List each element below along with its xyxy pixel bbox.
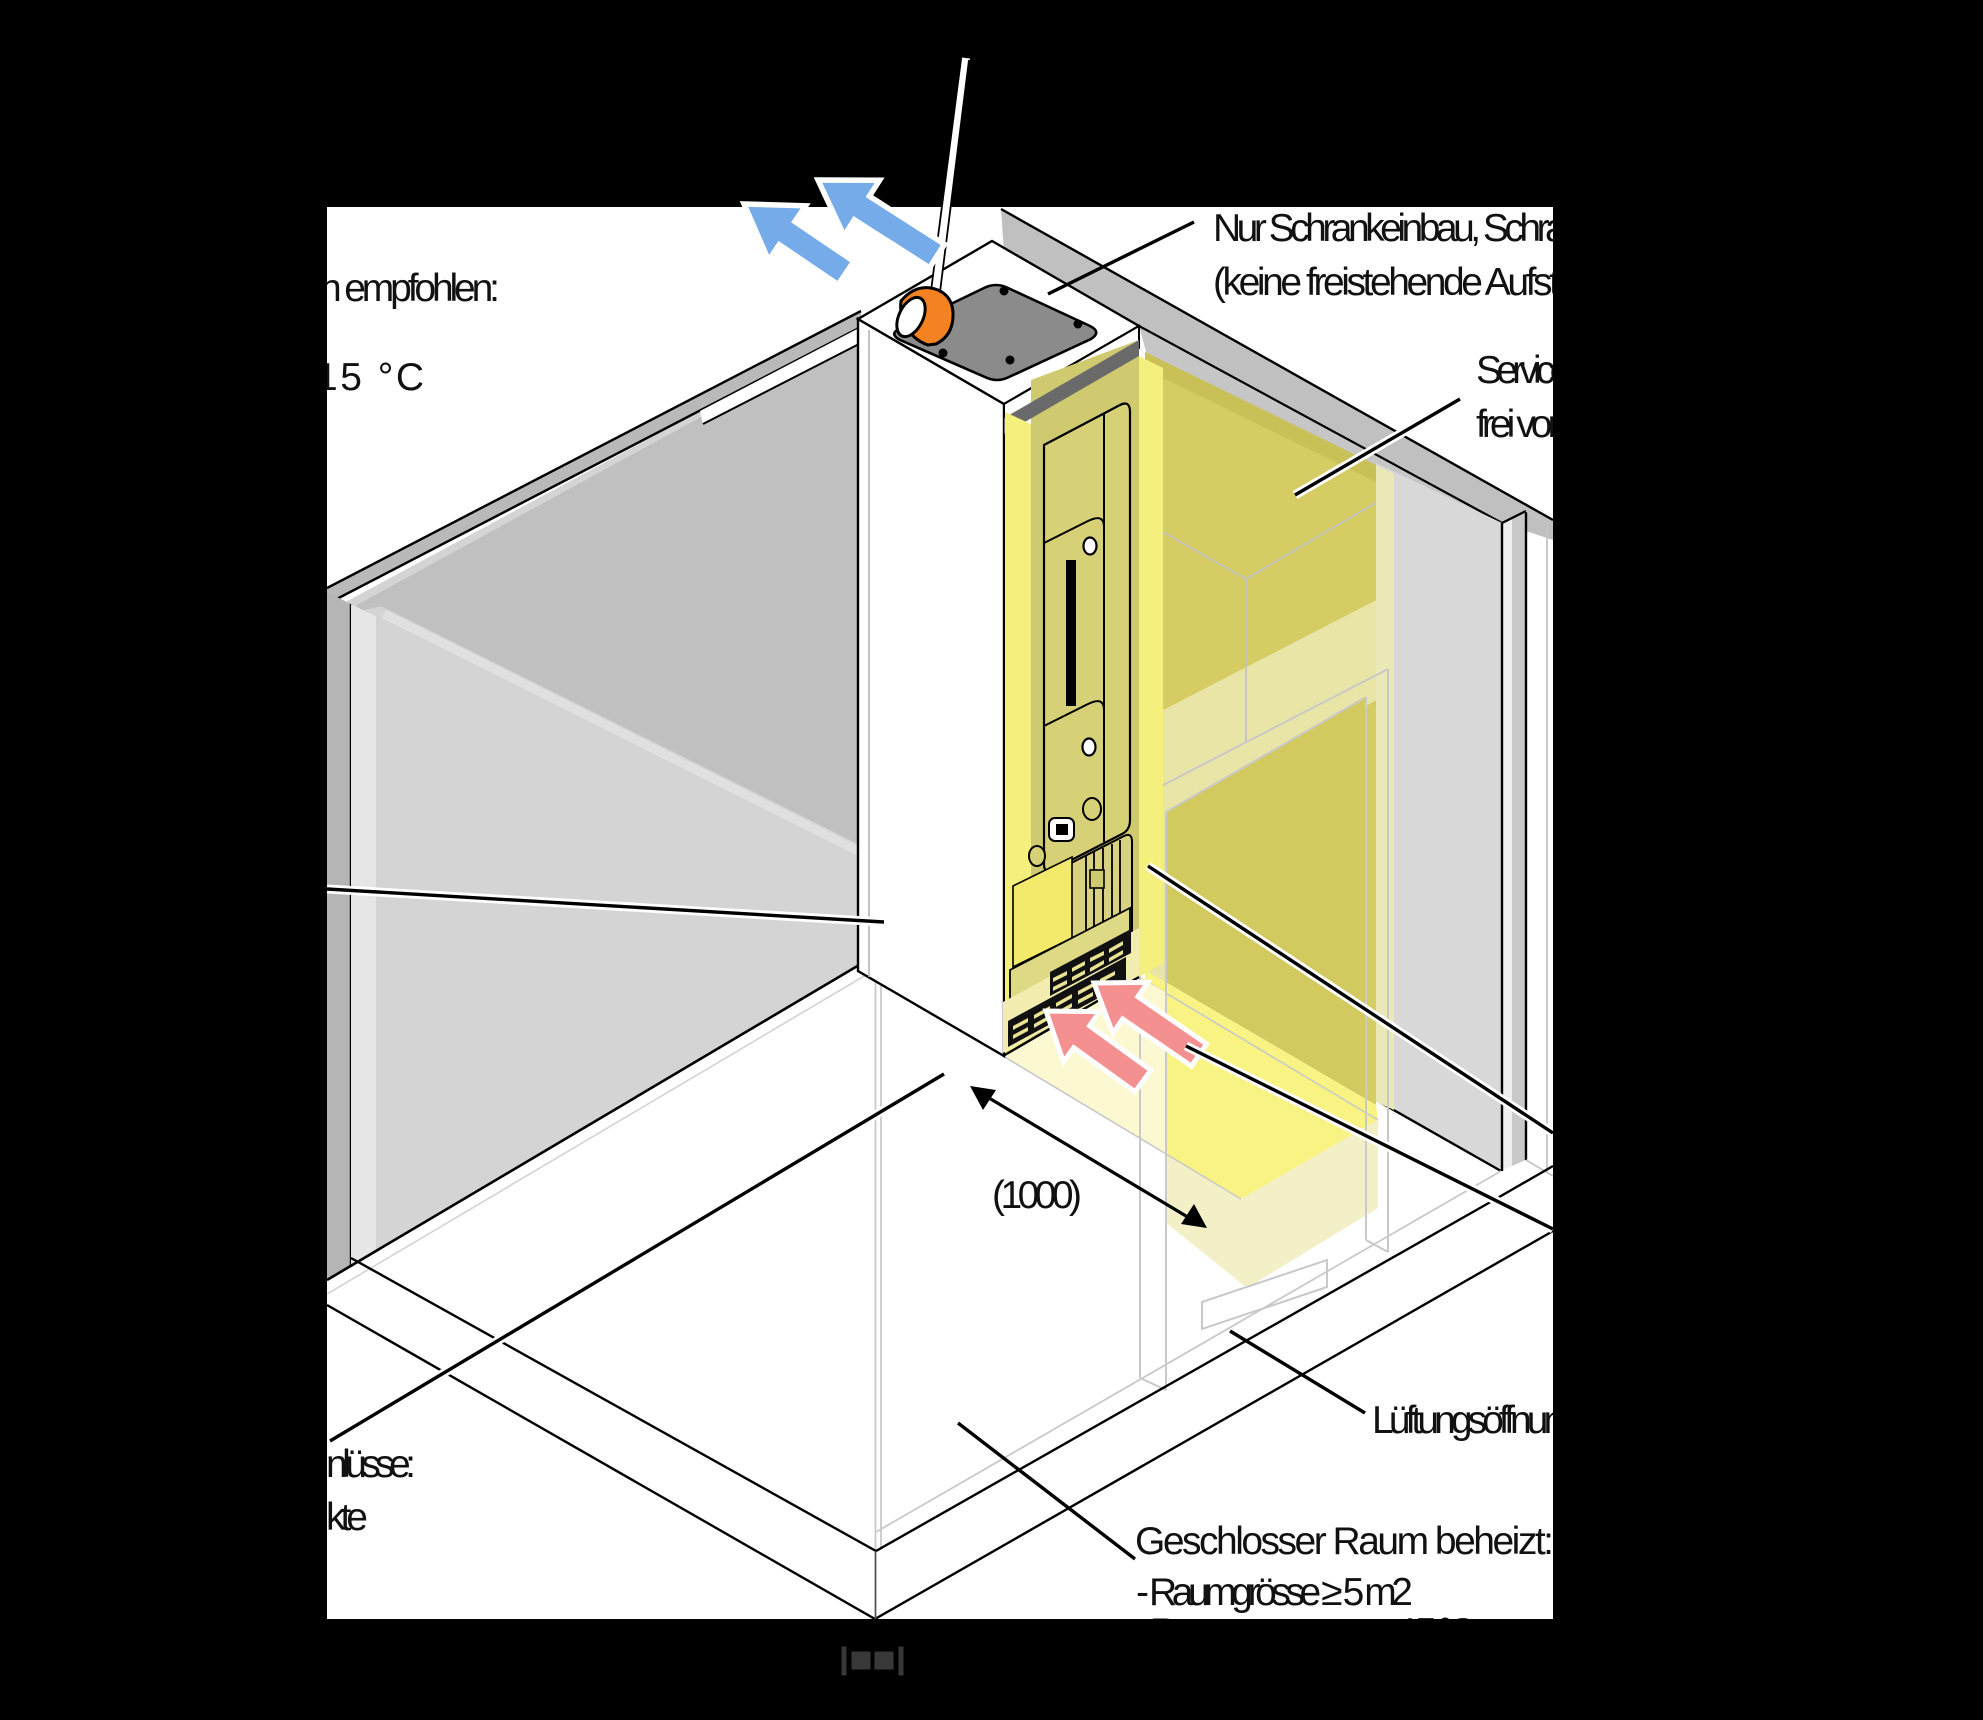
svg-text:Lüftungsöffnung: Lüftungsöffnung [1372,1399,1582,1442]
svg-text:15 °C: 15 °C [316,356,424,399]
svg-text:Nur Schrankeinbau, Schrankaufs: Nur Schrankeinbau, Schrankaufstellung [1213,207,1738,250]
svg-text:Servicefreiraum: Servicefreiraum [1476,349,1668,392]
svg-text:(keine freistehende Aufstellun: (keine freistehende Aufstellung) [1213,261,1653,304]
svg-text:frei von Einbauten: frei von Einbauten [1476,403,1706,446]
svg-text:- Raumtemperatur ≥ 15 °C: - Raumtemperatur ≥ 15 °C [1136,1611,1476,1654]
svg-text:- Raumgrösse ≥ 5 m2: - Raumgrösse ≥ 5 m2 [1136,1571,1413,1614]
svg-text:Geschlosser Raum beheizt:: Geschlosser Raum beheizt: [1135,1520,1554,1563]
svg-text:(1000): (1000) [992,1174,1082,1217]
svg-text:kte: kte [326,1496,368,1539]
svg-text:n empfohlen:: n empfohlen: [320,267,500,310]
svg-text:nlüsse:: nlüsse: [326,1443,416,1486]
